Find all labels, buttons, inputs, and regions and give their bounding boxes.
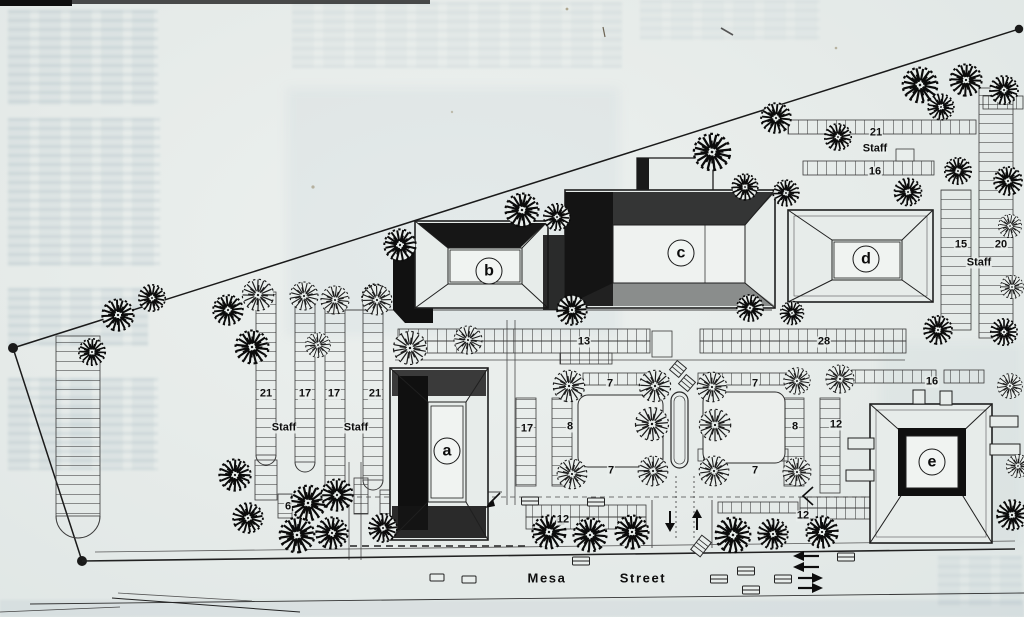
building-label-d: d — [853, 246, 880, 273]
building-label-e: e — [919, 449, 946, 476]
parking-count-label: 16 — [925, 377, 939, 388]
parking-count-label: 12 — [829, 420, 843, 431]
building-label-c: c — [668, 240, 695, 267]
parking-count-label: 12 — [556, 515, 570, 526]
parking-count-label: 8 — [791, 422, 799, 433]
parking-count-label: 7 — [607, 466, 615, 477]
staff-label: Staff — [271, 423, 297, 434]
building-label-a: a — [434, 438, 461, 465]
scan-specks — [311, 8, 837, 189]
parking-count-label: 21 — [869, 128, 883, 139]
parking-count-label: 17 — [298, 389, 312, 400]
street-name: Mesa — [527, 572, 568, 585]
parking-count-label: 15 — [954, 240, 968, 251]
parking-count-label: 16 — [868, 167, 882, 178]
parking-count-label: 21 — [368, 389, 382, 400]
building-label-b: b — [476, 258, 503, 285]
parking-count-label: 8 — [566, 422, 574, 433]
building-b — [393, 221, 548, 323]
parking-count-label: 12 — [796, 511, 810, 522]
staff-label: Staff — [966, 258, 992, 269]
parking-count-label: 17 — [520, 424, 534, 435]
parking-count-label: 17 — [327, 389, 341, 400]
parking-count-label: 21 — [259, 389, 273, 400]
parking-count-label: 7 — [751, 466, 759, 477]
staff-label: Staff — [862, 144, 888, 155]
parking-count-label: 28 — [817, 337, 831, 348]
parking-count-label: 6 — [284, 502, 292, 513]
mesa-street — [0, 541, 1024, 612]
staff-label: Staff — [343, 423, 369, 434]
street-name: Street — [619, 572, 667, 585]
parking-count-label: 13 — [577, 337, 591, 348]
site-plan-drawing — [0, 0, 1024, 617]
parking-count-label: 7 — [751, 379, 759, 390]
parking-count-label: 20 — [994, 240, 1008, 251]
parking-count-label: 7 — [606, 379, 614, 390]
scanned-site-plan-page: 21 17 17 21 Staff Staff 21 Staff 16 15 2… — [0, 0, 1024, 617]
